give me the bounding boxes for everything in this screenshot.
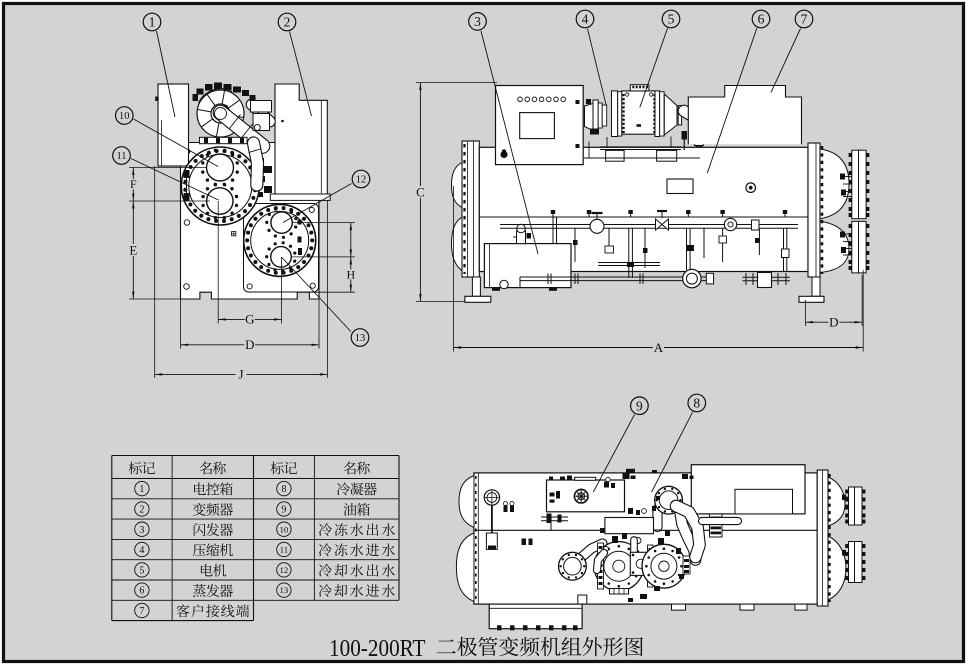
svg-text:4: 4: [139, 545, 144, 556]
svg-text:8: 8: [693, 396, 700, 411]
svg-text:F: F: [130, 177, 137, 191]
svg-text:7: 7: [139, 606, 144, 617]
svg-text:1: 1: [149, 15, 156, 30]
svg-text:G: G: [245, 312, 254, 327]
svg-text:12: 12: [280, 565, 289, 575]
svg-text:2: 2: [284, 15, 291, 30]
svg-text:10: 10: [119, 111, 130, 122]
svg-text:7: 7: [801, 12, 808, 27]
svg-text:3: 3: [474, 14, 481, 29]
svg-text:4: 4: [582, 12, 589, 27]
svg-text:13: 13: [280, 585, 289, 595]
svg-text:6: 6: [758, 12, 765, 27]
svg-text:1: 1: [139, 484, 144, 495]
svg-text:H: H: [346, 268, 355, 282]
svg-text:10: 10: [280, 524, 289, 534]
svg-text:3: 3: [139, 525, 144, 536]
svg-text:A: A: [654, 340, 664, 355]
svg-text:11: 11: [280, 545, 288, 555]
svg-text:13: 13: [355, 333, 366, 344]
svg-text:9: 9: [281, 505, 286, 516]
svg-text:12: 12: [356, 175, 367, 186]
svg-text:8: 8: [281, 484, 286, 495]
svg-text:100-200RT: 100-200RT: [329, 635, 426, 662]
svg-text:2: 2: [139, 505, 144, 516]
svg-text:11: 11: [116, 151, 126, 162]
svg-text:D: D: [829, 315, 838, 330]
svg-text:6: 6: [139, 586, 144, 597]
svg-text:5: 5: [668, 12, 675, 27]
svg-text:C: C: [416, 184, 425, 199]
svg-text:5: 5: [139, 565, 144, 576]
svg-text:9: 9: [636, 398, 643, 413]
svg-text:D: D: [245, 337, 254, 352]
svg-text:J: J: [238, 367, 243, 382]
svg-text:E: E: [129, 242, 137, 257]
